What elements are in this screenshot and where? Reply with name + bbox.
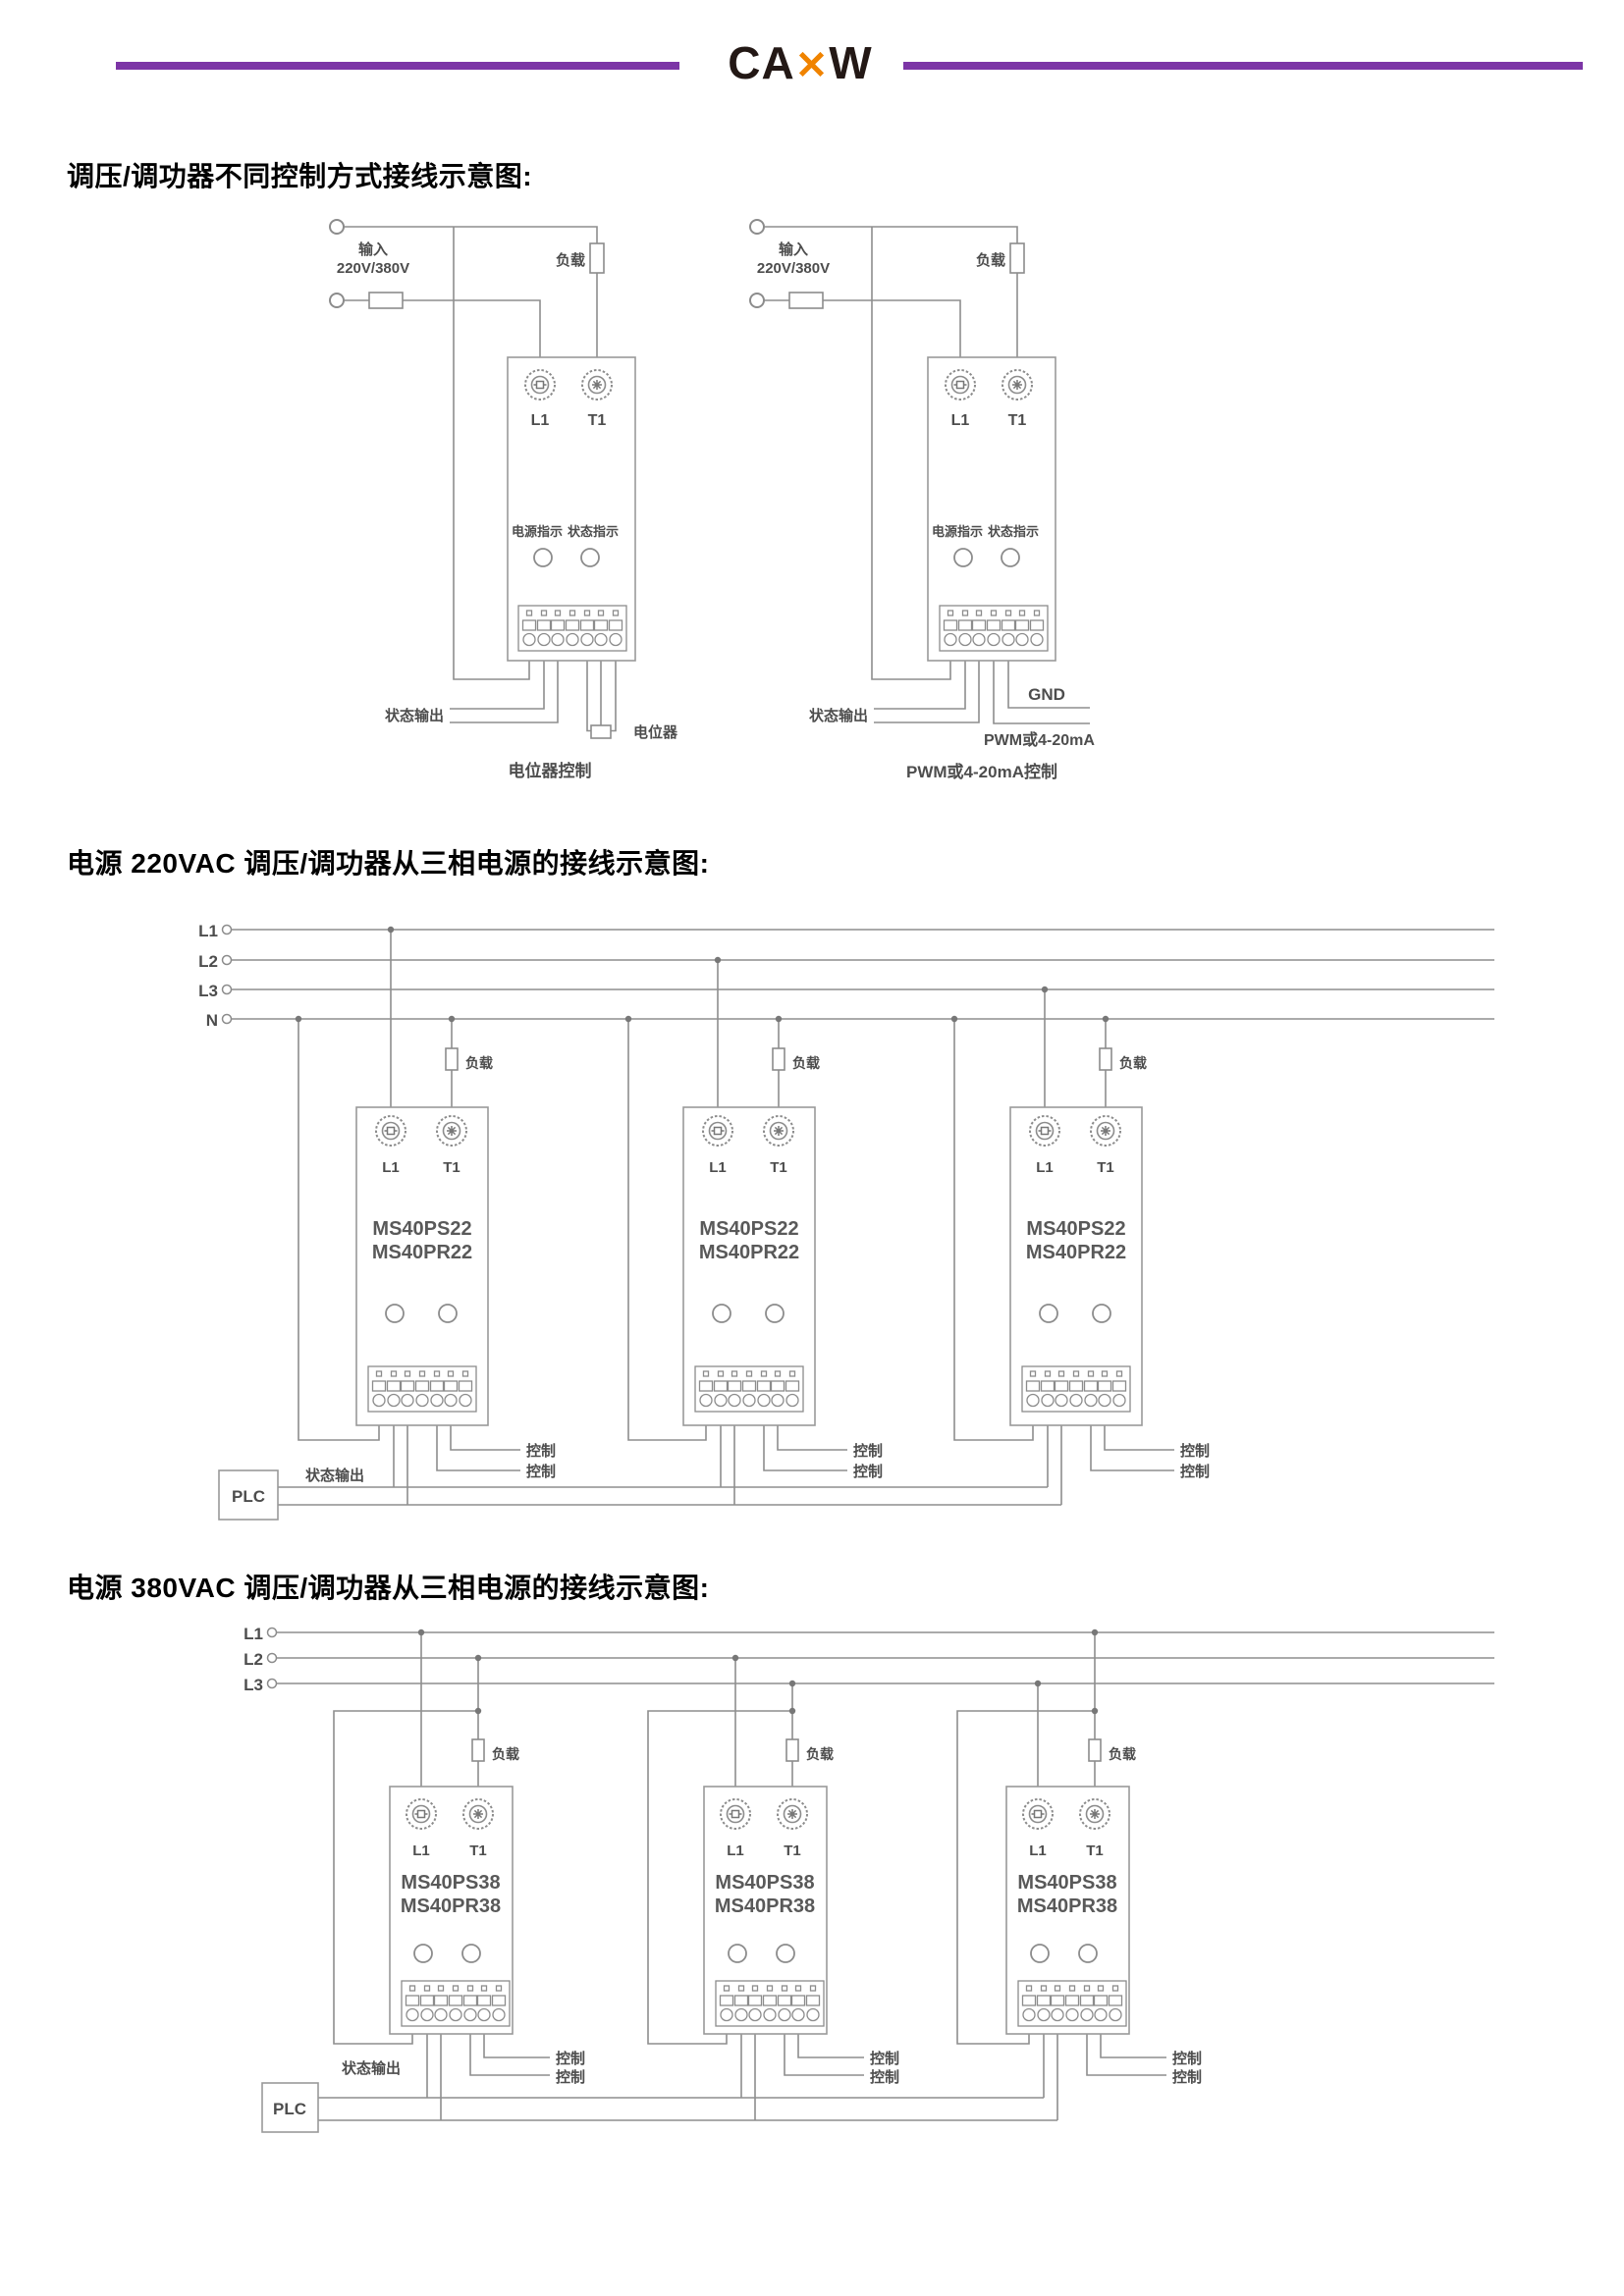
pot-control-caption: 电位器控制 <box>509 761 592 780</box>
screw-terminal-l1-icon <box>376 1116 406 1146</box>
t1-label: T1 <box>784 1842 801 1859</box>
junction-dot <box>625 1016 631 1022</box>
screw-terminal-t1-icon <box>437 1116 466 1146</box>
load-icon <box>773 1048 785 1070</box>
screw-terminal-l1-icon <box>703 1116 732 1146</box>
status-indicator-icon <box>777 1945 794 1962</box>
load-label: 负载 <box>792 1055 820 1071</box>
bus-terminal-icon <box>223 1015 232 1024</box>
diagram-220vac: L1 L2 L3 N 负载 L1 T1 MS40 <box>0 888 1624 1546</box>
load-label: 负载 <box>976 251 1005 269</box>
control-label: 控制 <box>1180 1442 1210 1460</box>
brand-logo: CA✕W <box>722 33 879 95</box>
load-icon <box>446 1048 458 1070</box>
bus-label-l3: L3 <box>244 1676 263 1694</box>
t1-label: T1 <box>1097 1159 1114 1176</box>
input-voltage-label: 220V/380V <box>337 260 409 277</box>
junction-dot <box>1092 1708 1098 1714</box>
junction-dot <box>789 1708 795 1714</box>
model-label: MS40PS22 <box>699 1218 798 1240</box>
junction-dot <box>715 957 721 963</box>
pwm-label: PWM或4-20mA <box>984 730 1095 749</box>
section3-title: 电源 380VAC 调压/调功器从三相电源的接线示意图: <box>67 1567 709 1606</box>
junction-dot <box>296 1016 301 1022</box>
bus-terminal-icon <box>223 986 232 994</box>
junction-dot <box>475 1655 481 1661</box>
model-label: MS40PS22 <box>1026 1218 1125 1240</box>
regulator-device-1: 负载 L1 T1 MS40PS22 MS40PR22 控制 控制 <box>296 927 556 1505</box>
t1-label: T1 <box>1008 412 1027 429</box>
screw-terminal-t1-icon <box>1002 370 1032 400</box>
junction-dot <box>1042 987 1048 992</box>
load-icon <box>1089 1739 1101 1761</box>
control-label: 控制 <box>853 1442 883 1460</box>
l1-label: L1 <box>1036 1159 1054 1176</box>
terminal-strip <box>940 606 1048 651</box>
plc-bus-lines <box>278 1487 1061 1505</box>
t1-label: T1 <box>469 1842 487 1859</box>
control-label: 控制 <box>870 2050 899 2067</box>
power-indicator-icon <box>954 549 972 566</box>
screw-terminal-t1-icon <box>1091 1116 1120 1146</box>
l1-label: L1 <box>709 1159 727 1176</box>
control-label: 控制 <box>526 1442 556 1460</box>
status-indicator-icon <box>1001 549 1019 566</box>
potentiometer-icon <box>591 725 611 738</box>
bus-terminal-icon <box>223 956 232 965</box>
power-indicator-icon <box>414 1945 432 1962</box>
status-indicator-icon <box>439 1305 457 1322</box>
screw-terminal-l1-icon <box>946 370 975 400</box>
status-output-label: 状态输出 <box>809 707 868 724</box>
input-label: 输入 <box>779 240 808 258</box>
power-indicator-label: 电源指示 <box>512 524 563 539</box>
brand-x-icon: ✕ <box>795 44 830 87</box>
pwm-control-caption: PWM或4-20mA控制 <box>906 762 1057 781</box>
l1-label: L1 <box>951 412 970 429</box>
junction-dot <box>388 927 394 933</box>
screw-terminal-l1-icon <box>525 370 555 400</box>
status-indicator-label: 状态指示 <box>568 524 619 539</box>
status-indicator-icon <box>1079 1945 1097 1962</box>
terminal-strip <box>695 1366 803 1412</box>
terminal-strip <box>518 606 626 651</box>
pot-control-device: 输入 220V/380V 负载 L1 T1 电源指示 状态指示 状态输出 电位器… <box>330 220 678 780</box>
status-output-label: 状态输出 <box>385 707 444 724</box>
model-label: MS40PR22 <box>1026 1242 1126 1263</box>
regulator-device-3: 负载 L1 T1 MS40PS22 MS40PR22 控制 控制 <box>951 987 1210 1505</box>
power-indicator-icon <box>1040 1305 1057 1322</box>
screw-terminal-t1-icon <box>582 370 612 400</box>
l1-label: L1 <box>531 412 550 429</box>
load-icon <box>590 243 604 273</box>
load-icon <box>786 1739 798 1761</box>
model-label: MS40PR38 <box>401 1896 501 1917</box>
bus-label-l2: L2 <box>244 1650 263 1669</box>
model-label: MS40PR38 <box>715 1896 815 1917</box>
load-icon <box>472 1739 484 1761</box>
potentiometer-label: 电位器 <box>633 723 678 741</box>
input-terminal-icon <box>330 220 344 234</box>
status-indicator-icon <box>462 1945 480 1962</box>
header-rule-right <box>903 62 1583 70</box>
junction-dot <box>418 1629 424 1635</box>
bus-lines <box>277 1632 1494 1683</box>
t1-label: T1 <box>1086 1842 1104 1859</box>
status-output-label: 状态输出 <box>305 1467 364 1484</box>
model-label: MS40PR38 <box>1017 1896 1117 1917</box>
bus-label-l1: L1 <box>198 922 218 940</box>
l1-label: L1 <box>727 1842 744 1859</box>
power-indicator-icon <box>386 1305 404 1322</box>
screw-terminal-l1-icon <box>1023 1799 1053 1829</box>
screw-terminal-l1-icon <box>406 1799 436 1829</box>
input-voltage-label: 220V/380V <box>757 260 830 277</box>
bus-lines <box>232 930 1494 1019</box>
model-label: MS40PS38 <box>1017 1872 1116 1894</box>
input-terminal-icon <box>750 294 764 307</box>
section2-title: 电源 220VAC 调压/调功器从三相电源的接线示意图: <box>67 842 709 881</box>
load-label: 负载 <box>806 1746 834 1762</box>
power-indicator-label: 电源指示 <box>932 524 983 539</box>
l1-label: L1 <box>382 1159 400 1176</box>
l1-label: L1 <box>1029 1842 1047 1859</box>
regulator-device-2: 负载 L1 T1 MS40PS22 MS40PR22 控制 控制 <box>625 957 883 1505</box>
control-label: 控制 <box>1180 1463 1210 1480</box>
bus-terminal-icon <box>268 1680 277 1688</box>
regulator-device-2: 负载 L1 T1 MS40PS38 MS40PR38 控制 控制 <box>648 1655 899 2120</box>
l1-label: L1 <box>412 1842 430 1859</box>
screw-terminal-l1-icon <box>1030 1116 1059 1146</box>
control-label: 控制 <box>1172 2050 1202 2067</box>
control-label: 控制 <box>853 1463 883 1480</box>
junction-dot <box>776 1016 782 1022</box>
bus-label-l1: L1 <box>244 1625 263 1643</box>
status-output-label: 状态输出 <box>342 2059 401 2077</box>
control-label: 控制 <box>556 2050 585 2067</box>
screw-terminal-t1-icon <box>764 1116 793 1146</box>
status-indicator-icon <box>1093 1305 1110 1322</box>
junction-dot <box>732 1655 738 1661</box>
control-label: 控制 <box>1172 2068 1202 2086</box>
terminal-strip <box>1022 1366 1130 1412</box>
terminal-strip <box>1018 1981 1126 2026</box>
load-label: 负载 <box>1119 1055 1147 1071</box>
input-label: 输入 <box>358 240 388 258</box>
plc-label: PLC <box>273 2100 306 2118</box>
bus-label-l3: L3 <box>198 982 218 1000</box>
bus-label-n: N <box>206 1011 218 1030</box>
gnd-label: GND <box>1028 685 1065 704</box>
screw-terminal-l1-icon <box>721 1799 750 1829</box>
model-label: MS40PR22 <box>699 1242 799 1263</box>
load-icon <box>1100 1048 1111 1070</box>
power-indicator-icon <box>1031 1945 1049 1962</box>
screw-terminal-t1-icon <box>1080 1799 1110 1829</box>
bus-terminal-icon <box>268 1629 277 1637</box>
regulator-device-3: 负载 L1 T1 MS40PS38 MS40PR38 控制 控制 <box>957 1629 1202 2120</box>
power-indicator-icon <box>534 549 552 566</box>
screw-terminal-t1-icon <box>778 1799 807 1829</box>
load-label: 负载 <box>556 251 585 269</box>
terminal-strip <box>402 1981 510 2026</box>
screw-terminal-t1-icon <box>463 1799 493 1829</box>
input-terminal-icon <box>750 220 764 234</box>
status-indicator-label: 状态指示 <box>988 524 1039 539</box>
header-rule-left <box>116 62 679 70</box>
t1-label: T1 <box>443 1159 460 1176</box>
junction-dot <box>1035 1681 1041 1686</box>
load-label: 负载 <box>492 1746 519 1762</box>
plc-label: PLC <box>232 1487 265 1506</box>
bus-terminal-icon <box>223 926 232 934</box>
status-indicator-icon <box>766 1305 784 1322</box>
fuse-icon <box>369 293 403 308</box>
regulator-device-1: 负载 L1 T1 MS40PS38 MS40PR38 控制 控制 <box>334 1629 585 2120</box>
diagram-control-modes: 输入 220V/380V 负载 L1 T1 电源指示 状态指示 状态输出 电位器… <box>0 137 1624 815</box>
terminal-strip <box>716 1981 824 2026</box>
junction-dot <box>789 1681 795 1686</box>
control-label: 控制 <box>870 2068 899 2086</box>
load-icon <box>1010 243 1024 273</box>
load-label: 负载 <box>1109 1746 1136 1762</box>
fuse-icon <box>789 293 823 308</box>
bus-terminal-icon <box>268 1654 277 1663</box>
power-indicator-icon <box>729 1945 746 1962</box>
control-label: 控制 <box>526 1463 556 1480</box>
model-label: MS40PR22 <box>372 1242 472 1263</box>
t1-label: T1 <box>770 1159 787 1176</box>
junction-dot <box>1092 1629 1098 1635</box>
model-label: MS40PS22 <box>372 1218 471 1240</box>
power-indicator-icon <box>713 1305 731 1322</box>
plc-bus-lines <box>318 2098 1057 2120</box>
model-label: MS40PS38 <box>715 1872 814 1894</box>
manual-page: CA✕W 调压/调功器不同控制方式接线示意图: 电源 220VAC 调压/调功器… <box>0 0 1624 2296</box>
pwm-control-device: 输入 220V/380V 负载 L1 T1 电源指示 状态指示 状态输出 GND… <box>750 220 1095 781</box>
status-indicator-icon <box>581 549 599 566</box>
junction-dot <box>449 1016 455 1022</box>
diagram-380vac: L1 L2 L3 负载 L1 T1 MS40PS38 <box>0 1610 1624 2160</box>
load-label: 负载 <box>465 1055 493 1071</box>
bus-label-l2: L2 <box>198 952 218 971</box>
brand-text-post: W <box>829 37 872 88</box>
model-label: MS40PS38 <box>401 1872 500 1894</box>
t1-label: T1 <box>588 412 607 429</box>
brand-text-pre: CA <box>728 37 794 88</box>
junction-dot <box>951 1016 957 1022</box>
input-terminal-icon <box>330 294 344 307</box>
terminal-strip <box>368 1366 476 1412</box>
control-label: 控制 <box>556 2068 585 2086</box>
junction-dot <box>475 1708 481 1714</box>
junction-dot <box>1103 1016 1109 1022</box>
